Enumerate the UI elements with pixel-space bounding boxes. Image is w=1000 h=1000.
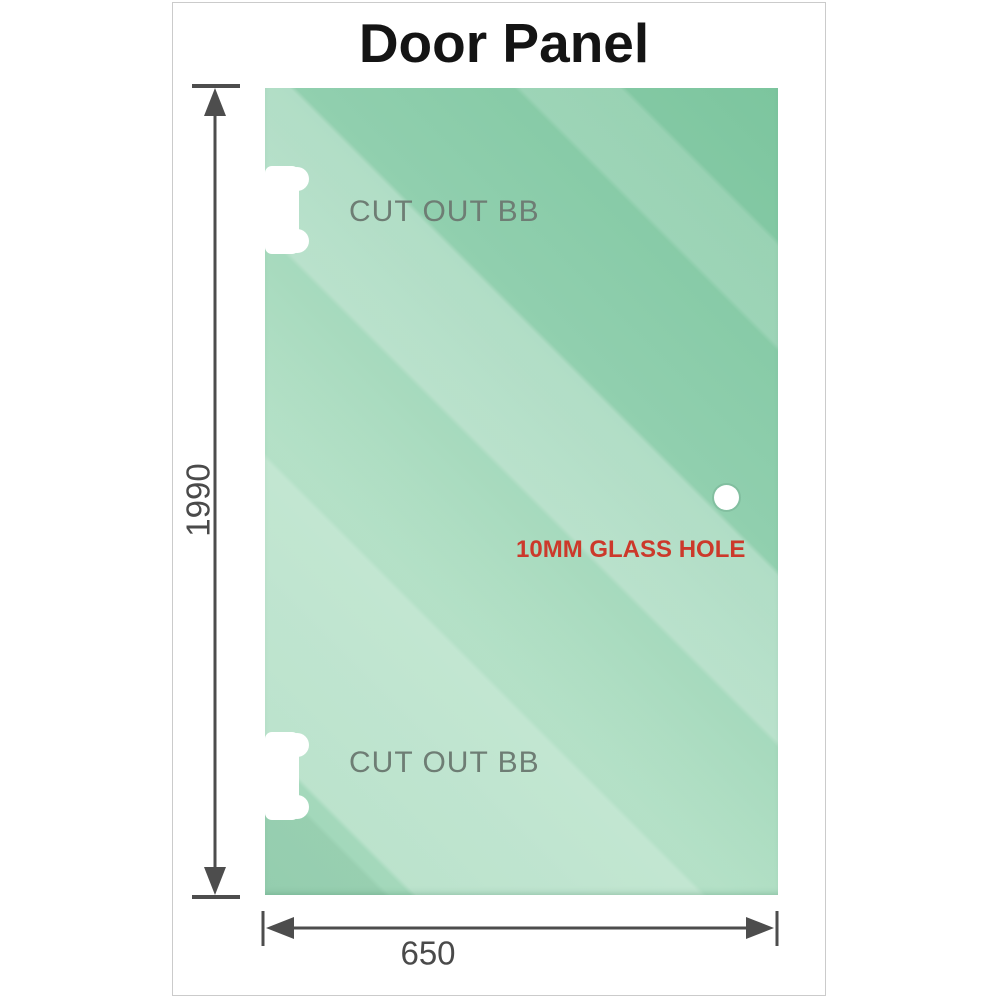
cutout-bottom-shape	[265, 732, 311, 820]
height-dimension-label: 1990	[182, 463, 215, 536]
glass-hole	[714, 485, 739, 510]
glass-hole-label: 10MM GLASS HOLE	[516, 536, 745, 564]
width-dimension-label: 650	[400, 937, 455, 970]
diagram-title: Door Panel	[172, 16, 836, 71]
cutout-top-label: CUT OUT BB	[349, 196, 540, 228]
cutout-top-shape	[265, 166, 311, 254]
cutout-bottom-label: CUT OUT BB	[349, 747, 540, 779]
